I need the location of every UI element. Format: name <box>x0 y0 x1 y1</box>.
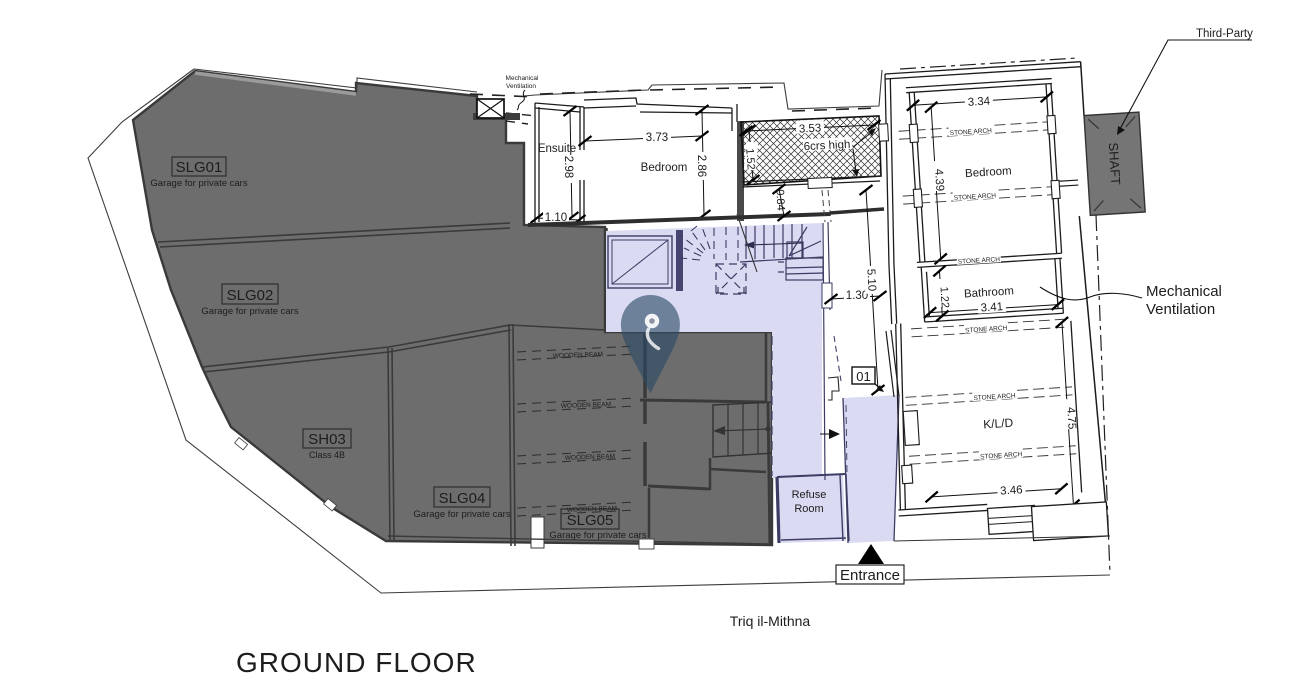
svg-text:SLG04: SLG04 <box>439 490 486 507</box>
svg-text:1.52: 1.52 <box>743 148 756 170</box>
svg-text:4.75: 4.75 <box>1064 407 1077 430</box>
svg-text:STONE ARCH: STONE ARCH <box>965 325 1008 335</box>
svg-text:Class 4B: Class 4B <box>309 450 345 460</box>
svg-text:Bedroom: Bedroom <box>965 165 1012 180</box>
svg-text:Third-Party: Third-Party <box>1196 28 1253 40</box>
svg-text:STONE ARCH: STONE ARCH <box>980 451 1023 461</box>
svg-text:2.86: 2.86 <box>695 155 707 177</box>
svg-text:SHAFT: SHAFT <box>1106 142 1124 186</box>
svg-text:3.34: 3.34 <box>967 95 991 108</box>
svg-text:STONE ARCH: STONE ARCH <box>950 127 993 137</box>
svg-text:2.98: 2.98 <box>562 156 574 178</box>
svg-text:Garage for private cars: Garage for private cars <box>413 509 510 520</box>
svg-text:6crs high: 6crs high <box>803 139 850 153</box>
svg-text:STONE ARCH: STONE ARCH <box>954 192 997 202</box>
svg-text:Entrance: Entrance <box>840 567 900 584</box>
svg-text:SLG02: SLG02 <box>227 287 274 304</box>
svg-text:01: 01 <box>856 369 870 384</box>
svg-text:Garage for private cars: Garage for private cars <box>150 178 247 189</box>
svg-text:SLG05: SLG05 <box>567 512 614 529</box>
svg-text:STONE ARCH: STONE ARCH <box>973 392 1016 402</box>
svg-text:SH03: SH03 <box>308 431 346 448</box>
svg-text:SLG01: SLG01 <box>176 159 223 176</box>
svg-text:4.39: 4.39 <box>932 168 945 191</box>
svg-text:Room: Room <box>794 503 823 515</box>
svg-text:Mechanical: Mechanical <box>1146 283 1222 300</box>
svg-text:Ventilation: Ventilation <box>1146 301 1215 318</box>
svg-text:STONE ARCH: STONE ARCH <box>958 256 1001 266</box>
svg-text:Garage for private cars: Garage for private cars <box>201 306 298 317</box>
svg-text:Refuse: Refuse <box>792 489 827 501</box>
svg-text:GROUND FLOOR: GROUND FLOOR <box>236 647 477 678</box>
svg-text:3.46: 3.46 <box>1000 484 1023 497</box>
svg-text:3.73: 3.73 <box>646 132 668 144</box>
svg-text:3.53: 3.53 <box>799 122 822 135</box>
svg-text:1.22: 1.22 <box>937 286 950 308</box>
svg-text:Bathroom: Bathroom <box>964 285 1015 300</box>
svg-text:5.10: 5.10 <box>864 269 877 292</box>
svg-text:Triq il-Mithna: Triq il-Mithna <box>730 613 811 629</box>
svg-text:Bedroom: Bedroom <box>641 162 688 174</box>
svg-text:3.41: 3.41 <box>980 301 1003 314</box>
svg-text:K/L/D: K/L/D <box>983 416 1014 432</box>
svg-text:Ventilation: Ventilation <box>506 83 536 90</box>
svg-text:1.30: 1.30 <box>846 290 868 302</box>
svg-text:Mechanical: Mechanical <box>506 75 539 82</box>
svg-text:0.84: 0.84 <box>773 189 786 211</box>
